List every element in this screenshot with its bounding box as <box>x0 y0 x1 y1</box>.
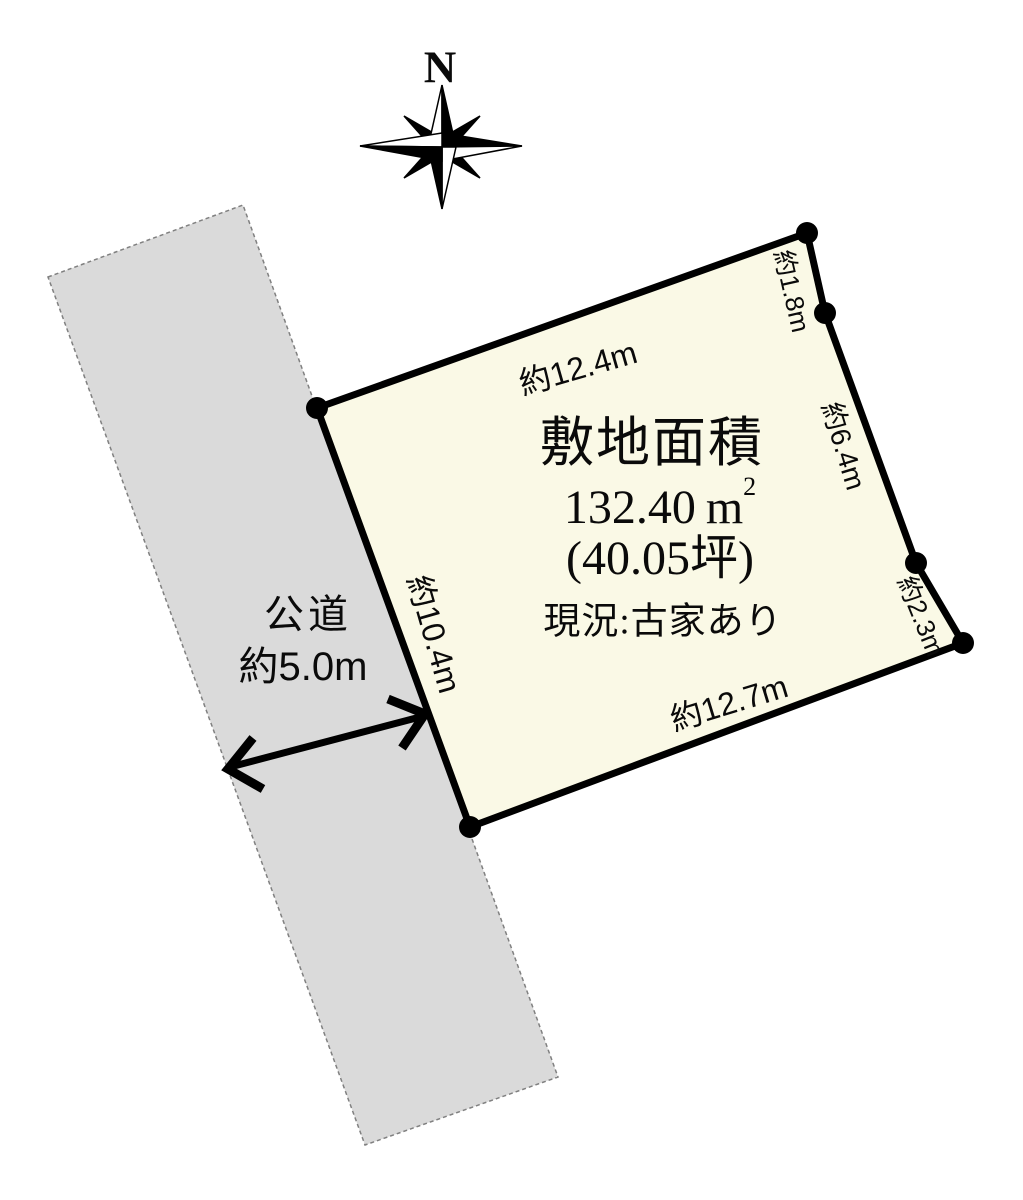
compass-north-label: N <box>424 46 457 91</box>
land-plot-diagram: N 約12.4m 約1.8m 約6.4m 約2.3m 約12.7m 約10.4m… <box>0 0 1023 1200</box>
road-width-label: 約5.0m <box>239 647 368 687</box>
compass-rose-icon <box>360 85 522 209</box>
plot-drawing-layer <box>0 0 1023 1200</box>
parcel-area-tsubo: (40.05坪) <box>566 535 754 583</box>
area-unit: m <box>706 481 743 534</box>
area-unit-exponent: 2 <box>743 472 756 501</box>
road-name-label: 公道 <box>264 595 352 635</box>
parcel-status: 現況:古家あり <box>543 604 782 641</box>
area-number: 132.40 <box>564 481 696 534</box>
parcel-area-title: 敷地面積 <box>540 416 764 470</box>
parcel-area-value: 132.40m2 <box>564 484 756 532</box>
